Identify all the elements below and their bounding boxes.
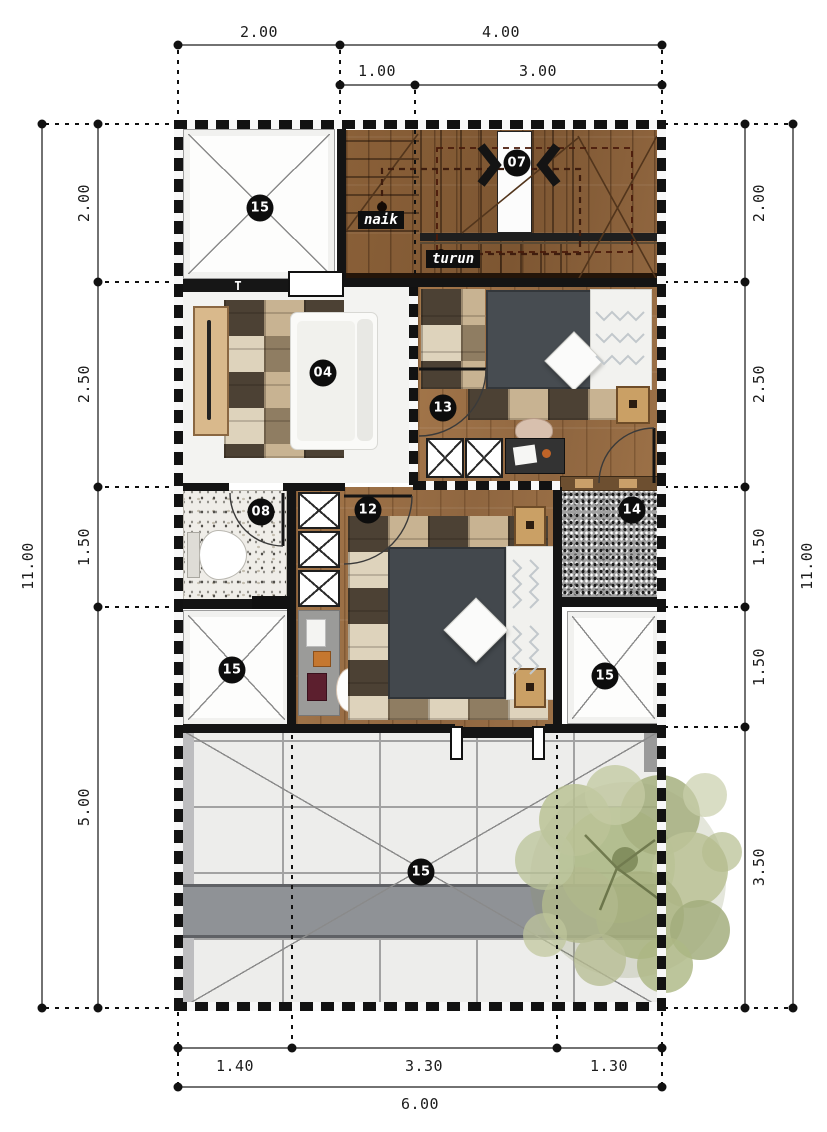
wardrobe-master-box <box>298 492 340 529</box>
stair-down-label: turun <box>426 250 480 268</box>
laptop <box>513 445 537 466</box>
wall-perimeter-bottom <box>174 1002 666 1011</box>
door-jamb-left <box>450 726 463 760</box>
door-jamb-right <box>532 726 545 760</box>
dim-top-3: 3.00 <box>519 62 557 80</box>
wall-sliding-window: T <box>183 279 293 292</box>
wall-void-stairs <box>337 129 346 287</box>
gravel-court-room <box>562 491 662 598</box>
wall-bath-top-left <box>183 483 229 491</box>
nightstand-knob <box>526 521 534 529</box>
wall-bedroom-divider <box>413 481 560 490</box>
wardrobe-front-box <box>426 438 464 478</box>
planter-box <box>619 479 637 488</box>
wall-master-gravel <box>553 487 562 733</box>
wardrobe-front-box <box>465 438 503 478</box>
sliding-door <box>462 727 534 738</box>
room-marker-void-left: 15 <box>219 657 246 684</box>
dim-bottom-total: 6.00 <box>401 1095 439 1113</box>
dim-top-1: 1.00 <box>358 62 396 80</box>
nightstand-front <box>616 386 650 424</box>
nightstand-knob <box>526 683 534 691</box>
desk-master <box>298 610 340 716</box>
bed-front-pillows <box>590 289 652 390</box>
desk-front <box>505 438 565 474</box>
bedroom-front-shelf <box>421 289 485 389</box>
dim-right-seg-2: 2.50 <box>750 365 768 403</box>
dim-right-seg-1: 2.00 <box>750 184 768 222</box>
room-marker-bedroom-front: 13 <box>430 395 457 422</box>
dim-bottom-130: 1.30 <box>590 1057 628 1075</box>
dim-top-2: 2.00 <box>240 23 278 41</box>
wall-perimeter-right <box>657 120 666 1011</box>
nightstand-master-top <box>514 506 546 546</box>
wall-perimeter-left <box>174 120 183 1011</box>
dim-left-seg-2: 2.50 <box>75 365 93 403</box>
dim-left-seg-1: 2.00 <box>75 184 93 222</box>
stair-handrail-edge <box>420 242 662 244</box>
nightstand-master-bottom <box>514 668 546 708</box>
dim-right-seg-4: 1.50 <box>750 648 768 686</box>
dim-bottom-330: 3.30 <box>405 1057 443 1075</box>
room-marker-void-top: 15 <box>247 195 274 222</box>
stair-landing-strip <box>497 131 532 233</box>
wall-stairs-bottom <box>346 278 662 287</box>
wall-bath-master <box>287 487 296 733</box>
stair-flight-upper-left <box>420 130 497 234</box>
dim-left-total: 11.00 <box>19 542 37 590</box>
desk-poster <box>306 619 326 647</box>
wall-symbol-t: T <box>234 279 241 293</box>
planter-shelf <box>560 476 662 491</box>
desk-item <box>313 651 331 667</box>
dim-bottom-140: 1.40 <box>216 1057 254 1075</box>
dim-right-seg-3: 1.50 <box>750 528 768 566</box>
wall-niche <box>288 271 344 297</box>
dim-left-seg-3: 1.50 <box>75 528 93 566</box>
room-marker-bedroom-master: 12 <box>355 497 382 524</box>
room-marker-family: 04 <box>310 360 337 387</box>
dim-left-seg-4: 5.00 <box>75 788 93 826</box>
wardrobe-master-box <box>298 570 340 607</box>
sofa-backrest <box>357 319 373 441</box>
planter-box <box>575 479 593 488</box>
floor-plan-canvas: T 15 07 04 13 08 12 14 15 15 15 naik tur… <box>0 0 827 1132</box>
tv-console <box>193 306 229 436</box>
room-marker-gravel: 14 <box>619 497 646 524</box>
bathroom-threshold <box>252 596 290 609</box>
dim-top-4: 4.00 <box>482 23 520 41</box>
dim-right-seg-5: 3.50 <box>750 848 768 886</box>
room-marker-roof: 15 <box>408 859 435 886</box>
nightstand-front-knob <box>629 400 637 408</box>
wall-gravel-bottom <box>560 597 662 607</box>
room-marker-stairs: 07 <box>504 150 531 177</box>
stair-flight-upper-right <box>532 130 578 234</box>
wall-bottom-right <box>545 724 662 733</box>
stair-handrail <box>420 233 662 241</box>
tv-screen <box>207 320 211 420</box>
stair-up-label: naik <box>358 211 404 229</box>
room-marker-void-right: 15 <box>592 663 619 690</box>
wall-perimeter-top <box>174 120 666 129</box>
wall-bottom-left <box>183 724 455 733</box>
desk-front-item <box>542 449 551 458</box>
desk-poster-dark <box>307 673 327 701</box>
room-marker-bathroom: 08 <box>248 499 275 526</box>
wardrobe-master-box <box>298 531 340 568</box>
dim-right-total: 11.00 <box>798 542 816 590</box>
wall-family-bedroom <box>409 287 418 485</box>
sofa <box>290 312 378 450</box>
